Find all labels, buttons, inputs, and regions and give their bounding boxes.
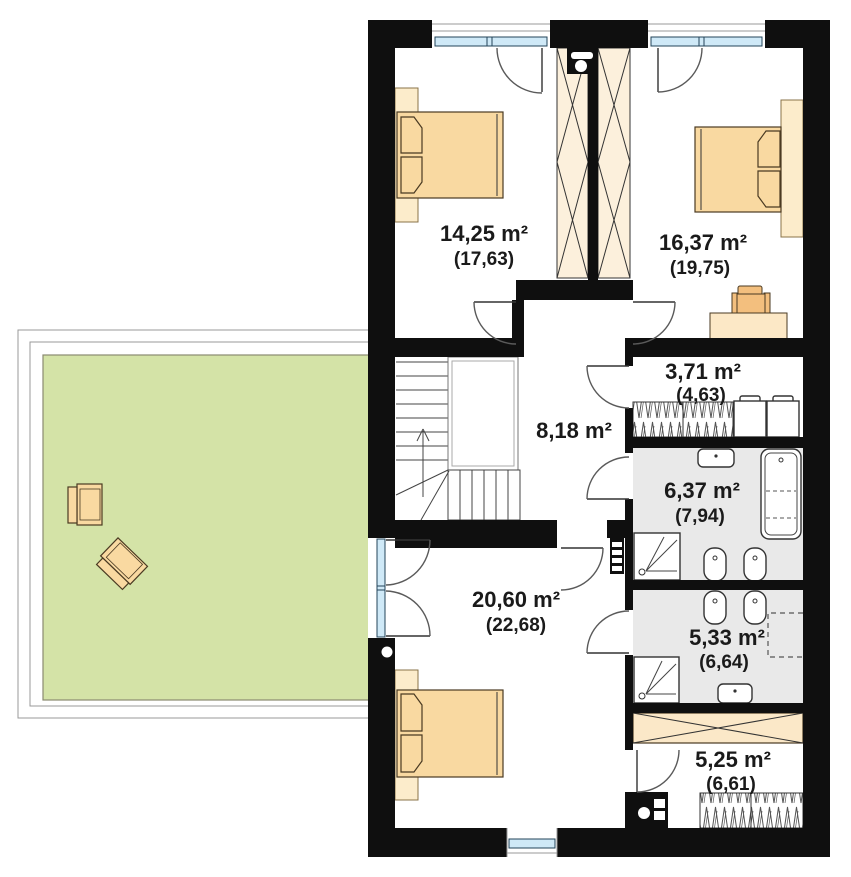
- bathroom2-area-label: 5,33 m²: [689, 625, 765, 650]
- shower: [634, 657, 679, 703]
- chimney: [625, 792, 668, 830]
- bedroom3-attic-label: (22,68): [486, 615, 546, 636]
- bedroom1-area-label: 14,25 m²: [440, 221, 528, 246]
- bathroom2-attic-label: (6,64): [699, 652, 749, 673]
- clothes-rail: [633, 402, 733, 437]
- toilet: [704, 548, 726, 581]
- armchair: [68, 484, 102, 525]
- sink: [698, 449, 734, 467]
- wardrobe-attic-label: (6,61): [706, 774, 756, 795]
- terrace-floor: [43, 355, 390, 700]
- bathtub: [761, 449, 801, 539]
- bathroom1-attic-label: (7,94): [675, 506, 725, 527]
- sink: [718, 684, 752, 703]
- floor-plan: 14,25 m² (17,63) 16,37 m² (19,75) 3,71 m…: [0, 0, 851, 877]
- closet-attic-label: (4,63): [676, 385, 726, 406]
- bedroom2-attic-label: (19,75): [670, 258, 730, 279]
- built-in-wardrobe: [598, 48, 630, 278]
- chimney-vent: [567, 48, 598, 74]
- washing-machine: [734, 396, 766, 437]
- closet-area-label: 3,71 m²: [665, 359, 741, 384]
- dryer: [767, 396, 799, 437]
- bathroom1-area-label: 6,37 m²: [664, 478, 740, 503]
- floor-plan-page: 14,25 m² (17,63) 16,37 m² (19,75) 3,71 m…: [0, 0, 851, 877]
- downpipe-dot: [382, 647, 393, 658]
- window: [507, 828, 557, 857]
- toilet: [704, 591, 726, 624]
- terrace: [18, 330, 390, 718]
- radiator: [610, 538, 624, 574]
- built-in-wardrobe: [633, 713, 803, 743]
- bedroom1-attic-label: (17,63): [454, 249, 514, 270]
- bedroom2-area-label: 16,37 m²: [659, 230, 747, 255]
- wardrobe-area-label: 5,25 m²: [695, 747, 771, 772]
- stairwell-void: [448, 357, 518, 470]
- bedroom3-area-label: 20,60 m²: [472, 587, 560, 612]
- shower: [634, 533, 680, 580]
- clothes-rail: [700, 793, 803, 828]
- hall-area-label: 8,18 m²: [536, 418, 612, 443]
- built-in-wardrobe: [557, 48, 588, 278]
